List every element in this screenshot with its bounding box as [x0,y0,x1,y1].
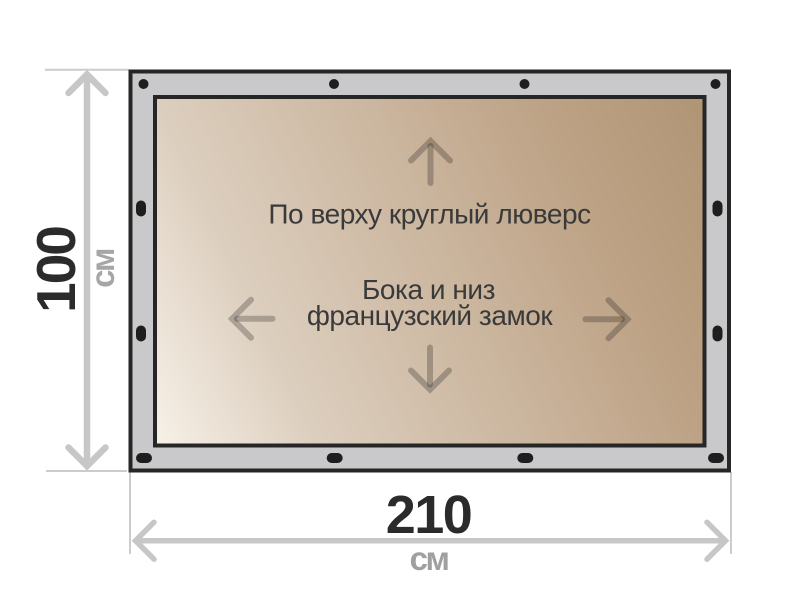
svg-text:По верху круглый люверс: По верху круглый люверс [268,199,591,230]
svg-text:см: см [84,249,121,288]
svg-text:100: 100 [25,227,87,313]
svg-text:210: 210 [386,485,472,545]
svg-text:французский замок: французский замок [307,300,554,331]
svg-text:см: см [410,540,449,577]
